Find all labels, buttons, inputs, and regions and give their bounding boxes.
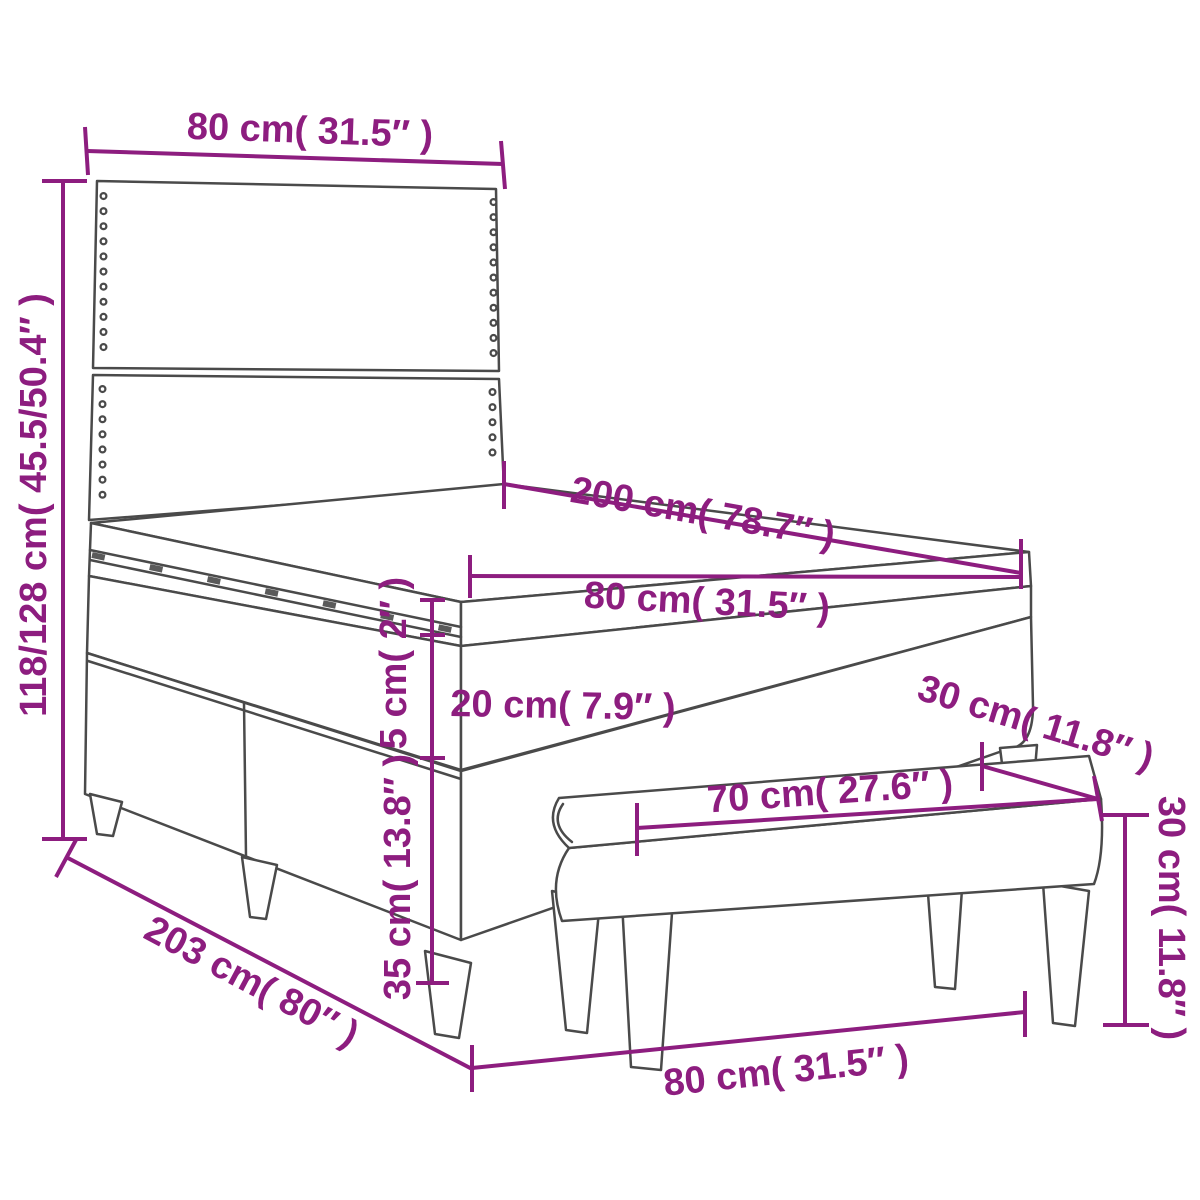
dim-bench-height-label: 30 cm( 11.8″ ): [1150, 796, 1192, 1040]
bed-bench-line-drawing: 80 cm( 31.5″ ) 118/128 cm( 45.5/50.4″ ) …: [0, 0, 1200, 1200]
dim-overall-height-label: 118/128 cm( 45.5/50.4″ ): [13, 293, 55, 717]
dim-topper-thickness-label: 5 cm( 2″ ): [373, 577, 415, 749]
dim-base-height-label: 35 cm( 13.8″ ): [377, 754, 419, 1000]
dim-headboard-width-label: 80 cm( 31.5″ ): [186, 106, 434, 157]
bed-leg-middle: [242, 857, 277, 919]
dim-bench-height-line: [1101, 815, 1149, 1025]
dim-bench-width-label: 80 cm( 31.5″ ): [661, 1037, 910, 1105]
bed-leg-left: [90, 794, 122, 836]
dim-overall-length-label: 203 cm( 80″ ): [138, 908, 366, 1056]
bench-leg-front-left: [622, 902, 672, 1070]
dimension-diagram: 80 cm( 31.5″ ) 118/128 cm( 45.5/50.4″ ) …: [0, 0, 1200, 1200]
bench-leg-front-right: [1043, 883, 1089, 1026]
dim-mattress-thickness-label: 20 cm( 7.9″ ): [450, 683, 676, 729]
headboard-upper-panel: [93, 181, 499, 371]
